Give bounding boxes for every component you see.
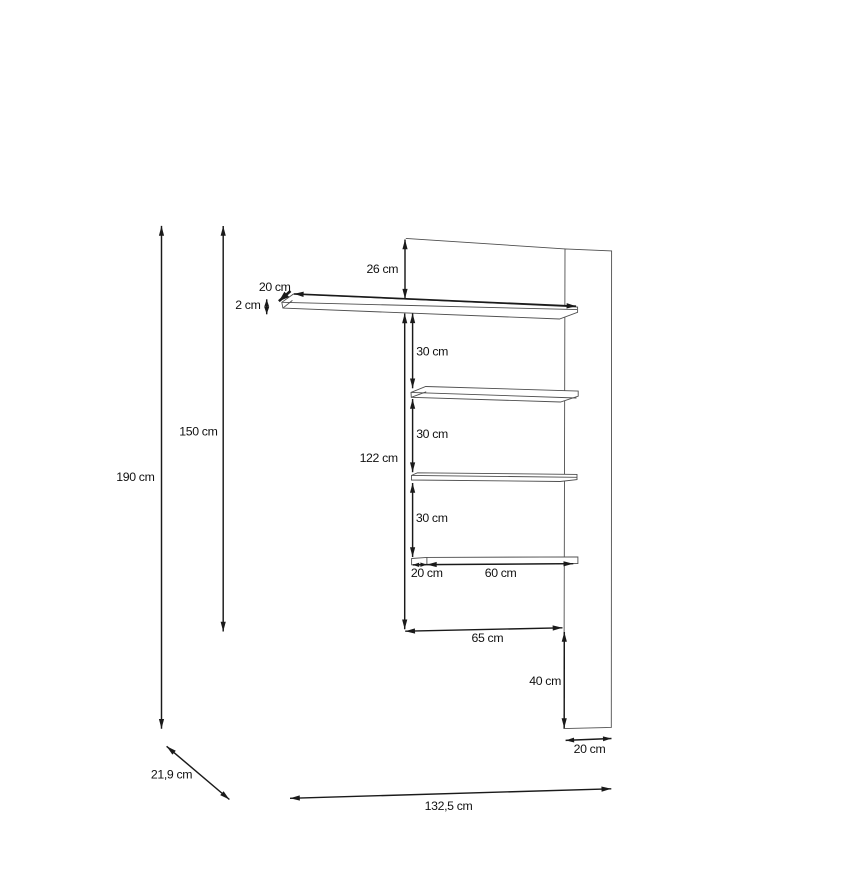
svg-text:30 cm: 30 cm: [416, 427, 448, 441]
svg-text:26 cm: 26 cm: [366, 262, 398, 276]
svg-text:65 cm: 65 cm: [472, 631, 504, 645]
svg-text:20 cm: 20 cm: [574, 742, 606, 756]
svg-text:2 cm: 2 cm: [235, 298, 260, 312]
svg-text:20 cm: 20 cm: [411, 566, 443, 580]
svg-text:60 cm: 60 cm: [485, 566, 517, 580]
svg-text:30 cm: 30 cm: [416, 511, 448, 525]
svg-text:40 cm: 40 cm: [529, 674, 561, 688]
svg-text:132,5 cm: 132,5 cm: [425, 799, 473, 813]
svg-text:30 cm: 30 cm: [416, 345, 448, 359]
svg-text:20 cm: 20 cm: [259, 280, 291, 294]
svg-text:150 cm: 150 cm: [179, 424, 217, 438]
svg-text:21,9 cm: 21,9 cm: [151, 768, 192, 782]
svg-text:190 cm: 190 cm: [116, 470, 154, 484]
svg-text:122 cm: 122 cm: [360, 451, 398, 465]
